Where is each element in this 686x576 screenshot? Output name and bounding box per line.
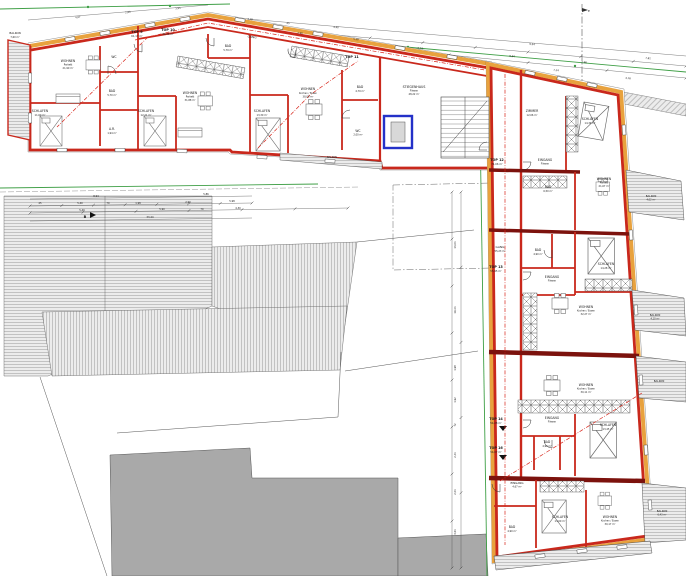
window (257, 155, 267, 159)
dim: 4,40 (333, 25, 339, 30)
unit-top9-area: 61,17 m² (131, 34, 142, 38)
dim: 2,90 (297, 31, 303, 36)
dim: 6,84 (509, 54, 515, 59)
balcony-nw (8, 40, 30, 140)
room-bad-16-area: 4,90 m² (507, 530, 516, 533)
dim: 2,04 (453, 489, 457, 495)
room-schlafen-11: SCHLAFEN (254, 109, 271, 113)
balkon-16-area: 6,43 m² (657, 514, 666, 517)
room-eingang-13: EINGANG (545, 275, 560, 279)
balkon-13: BALKON (650, 313, 661, 317)
dim: 72 (453, 423, 457, 427)
room-eingang-16: EINGANG (510, 481, 523, 485)
room-eingang-14-floor: Fliesen (548, 421, 557, 424)
room-bad-11: BAD (357, 85, 364, 89)
dim: 5,90 (159, 207, 165, 211)
corridor-gang-west: GANG (496, 245, 506, 249)
window (639, 375, 643, 385)
room-schlafen-11-area: 13,30 m² (257, 114, 268, 117)
room-schlafen-14-area: 13,45 m² (603, 428, 614, 431)
terrain-gray-main (110, 448, 398, 576)
room-wc-9: WC (111, 55, 116, 59)
room-bad-16: BAD (509, 525, 516, 529)
room-zimmer-12-area: 12,06 m² (527, 114, 538, 117)
room-bad-9: BAD (109, 89, 116, 93)
dim: 4,70 (247, 17, 253, 22)
room-zimmer-12: ZIMMER (526, 109, 539, 113)
room-schlafen-13: SCHLAFEN (598, 262, 615, 266)
room-bad-13: BAD (535, 248, 542, 252)
unit-top10: TOP 10 (161, 28, 175, 32)
room-eingang-14: EINGANG (545, 416, 560, 420)
dim: 7,61 (645, 56, 651, 61)
unit-top16-area: 54,07 m² (490, 450, 501, 454)
room-wohnen-16-area: 30,17 m² (605, 523, 616, 526)
room-eingang-16-area: 4,67 m² (512, 486, 521, 489)
dim: 4,30 (235, 206, 241, 210)
room-schlafen-9: SCHLAFEN (32, 109, 49, 113)
dim: 2,44 (453, 452, 457, 458)
room-wohnen-10-area: 31,88 m² (185, 99, 196, 102)
room-wohnen-12-area: 21,67 m² (599, 185, 610, 188)
room-wohnen-11-area: 38,08 m² (303, 96, 314, 99)
window (177, 149, 187, 153)
room-balkon-nw-area: 7,60 m² (10, 36, 19, 39)
dim: 3,94 (175, 6, 182, 11)
dim: 4,76 (625, 76, 631, 81)
room-wohnen-14-area: 30,11 m² (581, 391, 592, 394)
room-wohnen-10: WOHNEN (183, 91, 198, 95)
room-wc-11: WC (355, 129, 360, 133)
dim: 4,07 (75, 15, 82, 20)
window (644, 445, 648, 455)
window (325, 159, 335, 163)
room-bad-14: BAD (544, 440, 551, 444)
room-balkon-nw: BALKON (9, 31, 20, 35)
wing-right (486, 61, 654, 564)
room-schlafen-16: SCHLAFEN (552, 515, 569, 519)
room-wohnen-9: WOHNEN (61, 59, 76, 63)
room-schlafen-10: SCHLAFEN (138, 109, 155, 113)
window (57, 148, 67, 151)
room-bad-13-area: 4,90 m² (533, 253, 542, 256)
dim: 45 (38, 201, 42, 205)
dim: 45 (286, 21, 290, 25)
section-line-e (582, 4, 588, 88)
dim: 9,54 (529, 42, 535, 47)
room-wohnen-14: WOHNEN (579, 383, 594, 387)
room-bad-12: BAD (545, 185, 552, 189)
room-bad-11-area: 4,79 m² (355, 90, 364, 93)
dim: 70 (200, 207, 204, 211)
room-stiegenhaus: STIEGENHAUS (403, 85, 426, 89)
balkon-top11: BALKON (327, 156, 337, 159)
balkon-12: BALKON (646, 194, 657, 198)
terrain-gray-se (398, 534, 488, 576)
dim: 70 (106, 201, 110, 205)
room-bad-14-area: 4,90 m² (542, 445, 551, 448)
balcony-2 (632, 290, 686, 336)
unit-top13: TOP 13 (489, 265, 503, 269)
floorplan-svg: TOP 961,17 m²TOP 1056,36 m²TOP 11TOP 127… (0, 0, 686, 576)
unit-top16: TOP 16 (489, 446, 503, 450)
unit-top13-area: 55,95 m² (490, 269, 501, 273)
dim: 3,64 (453, 529, 457, 535)
dim: 3,74 (417, 46, 423, 51)
dim: 2,60 (125, 10, 132, 15)
room-schlafen-10-area: 12,21 m² (141, 114, 152, 117)
window (634, 305, 638, 315)
roof-hatch-band (42, 306, 347, 376)
room-ar-9: A.R. (109, 127, 115, 131)
room-schlafen-9-area: 11,60 m² (35, 114, 46, 117)
room-wc-11-area: 2,00 m² (353, 134, 362, 137)
floorplan-page: TOP 961,17 m²TOP 1056,36 m²TOP 11TOP 127… (0, 0, 686, 576)
room-schlafen-16-area: 13,00 m² (555, 520, 566, 523)
unit-top11: TOP 11 (345, 55, 359, 59)
dim: 13,64 (453, 241, 457, 249)
room-eingang-12-floor: Fliesen (541, 163, 550, 166)
dim: 33,44 (146, 215, 154, 219)
section-marker-b: B (84, 215, 87, 219)
window (115, 148, 125, 151)
room-bad-10: BAD (225, 44, 232, 48)
dim: 5,40 (77, 201, 83, 205)
window (622, 125, 626, 135)
room-stiegenhaus-area: 48,22 m² (409, 93, 420, 96)
balkon-16: BALKON (657, 509, 668, 513)
room-bad-10-area: 5,79 m² (223, 49, 232, 52)
room-bad-12-area: 6,50 m² (543, 190, 552, 193)
unit-top12: TOP 12 (490, 158, 504, 162)
room-schlafen-14: SCHLAFEN (600, 423, 617, 427)
dim: 5,86 (203, 192, 209, 196)
room-eingang-13-floor: Fliesen (548, 280, 557, 283)
room-ar-9-area: 1,94 m² (107, 132, 116, 135)
unit-top14: TOP 14 (489, 417, 503, 421)
room-wohnen-12: WOHNEN (597, 177, 612, 181)
balkon-13-area: 4,10 m² (650, 318, 659, 321)
dim: 2,96 (581, 60, 587, 65)
room-wohnen-11: WOHNEN (301, 87, 316, 91)
dim: 5,20 (353, 37, 359, 42)
room-schlafen-12: SCHLAFEN (582, 117, 599, 121)
dim: 7,24 (553, 68, 559, 73)
unit-top9: TOP 9 (131, 30, 143, 34)
room-wohnen-13: WOHNEN (579, 305, 594, 309)
balkon-14: BALKON (654, 379, 665, 383)
room-wohnen-16: WOHNEN (603, 515, 618, 519)
axis-box (393, 183, 492, 270)
balcony-3 (636, 356, 686, 402)
dim: 1,98 (453, 365, 457, 371)
room-schlafen-13-area: 14,28 m² (601, 267, 612, 270)
dim: 19,44 (453, 306, 457, 314)
window (28, 73, 31, 83)
room-wohnen-9-area: 21,90 m² (63, 67, 74, 70)
room-schlafen-12-area: 14,34 m² (585, 122, 596, 125)
dim: 8,94 (93, 194, 99, 198)
corridor-gang-west-area: 55,23 m² (495, 250, 506, 253)
room-bad-9-area: 5,70 m² (107, 94, 116, 97)
window (28, 113, 31, 123)
dim: 1,92 (453, 397, 457, 403)
unit-top10-area: 56,36 m² (162, 32, 173, 36)
room-wohnen-13-area: 32,27 m² (581, 313, 592, 316)
dim: 5,98 (229, 199, 235, 203)
window (648, 500, 652, 510)
dim: 5,40 (79, 208, 85, 212)
unit-top14-area: 54,28 m² (490, 421, 501, 425)
balkon-12-area: 4,02 m² (646, 199, 655, 202)
window (629, 230, 633, 240)
section-marker-e: E (588, 9, 590, 13)
dim: 2,90 (185, 200, 191, 204)
unit-top12-area: 71,06 m² (491, 162, 502, 166)
dim: 1,98 (135, 201, 141, 205)
room-eingang-12: EINGANG (538, 158, 553, 162)
